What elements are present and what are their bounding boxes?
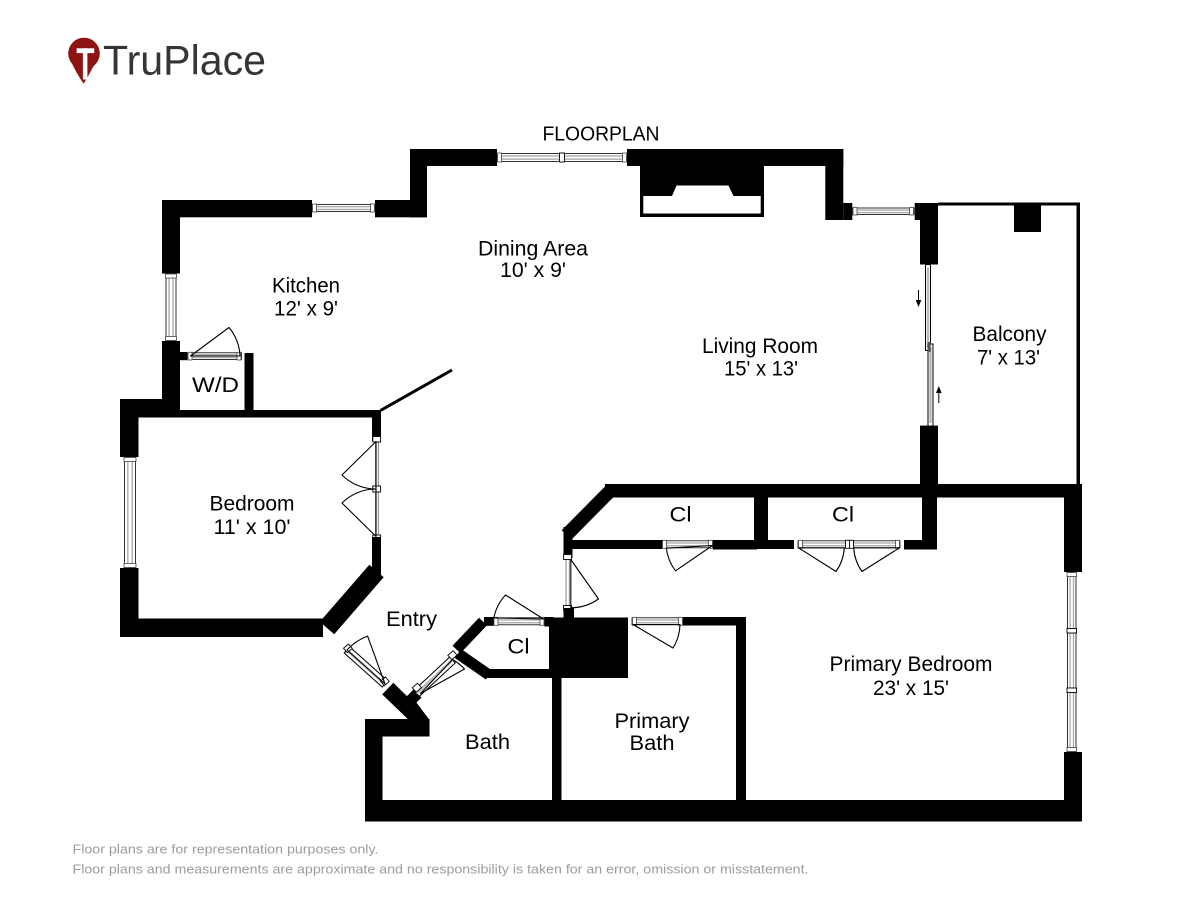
svg-text:Living Room: Living Room	[702, 335, 818, 358]
svg-text:10' x 9': 10' x 9'	[500, 259, 566, 282]
svg-text:W/D: W/D	[192, 374, 239, 397]
svg-text:Kitchen: Kitchen	[272, 275, 340, 298]
svg-text:Primary Bedroom: Primary Bedroom	[830, 653, 993, 676]
svg-text:15' x 13': 15' x 13'	[724, 358, 798, 381]
svg-text:11' x 10': 11' x 10'	[214, 516, 291, 539]
svg-text:Bath: Bath	[630, 732, 675, 755]
svg-text:Cl: Cl	[832, 504, 854, 527]
svg-text:Bedroom: Bedroom	[210, 493, 295, 516]
svg-text:23' x 15': 23' x 15'	[873, 677, 949, 700]
svg-text:12' x 9': 12' x 9'	[274, 298, 338, 321]
svg-text:Cl: Cl	[508, 636, 530, 659]
svg-text:Entry: Entry	[386, 608, 438, 631]
svg-text:FLOORPLAN: FLOORPLAN	[543, 123, 660, 146]
svg-text:Primary: Primary	[615, 710, 691, 733]
svg-text:Cl: Cl	[670, 504, 692, 527]
svg-text:7' x 13': 7' x 13'	[977, 347, 1040, 370]
svg-text:Balcony: Balcony	[973, 323, 1047, 346]
svg-text:TruPlace: TruPlace	[103, 37, 266, 84]
svg-text:Bath: Bath	[465, 731, 510, 754]
svg-text:Floor plans are for representa: Floor plans are for representation purpo…	[73, 842, 379, 857]
svg-text:Dining Area: Dining Area	[478, 238, 588, 261]
svg-text:Floor plans and measurements a: Floor plans and measurements are approxi…	[73, 862, 809, 877]
